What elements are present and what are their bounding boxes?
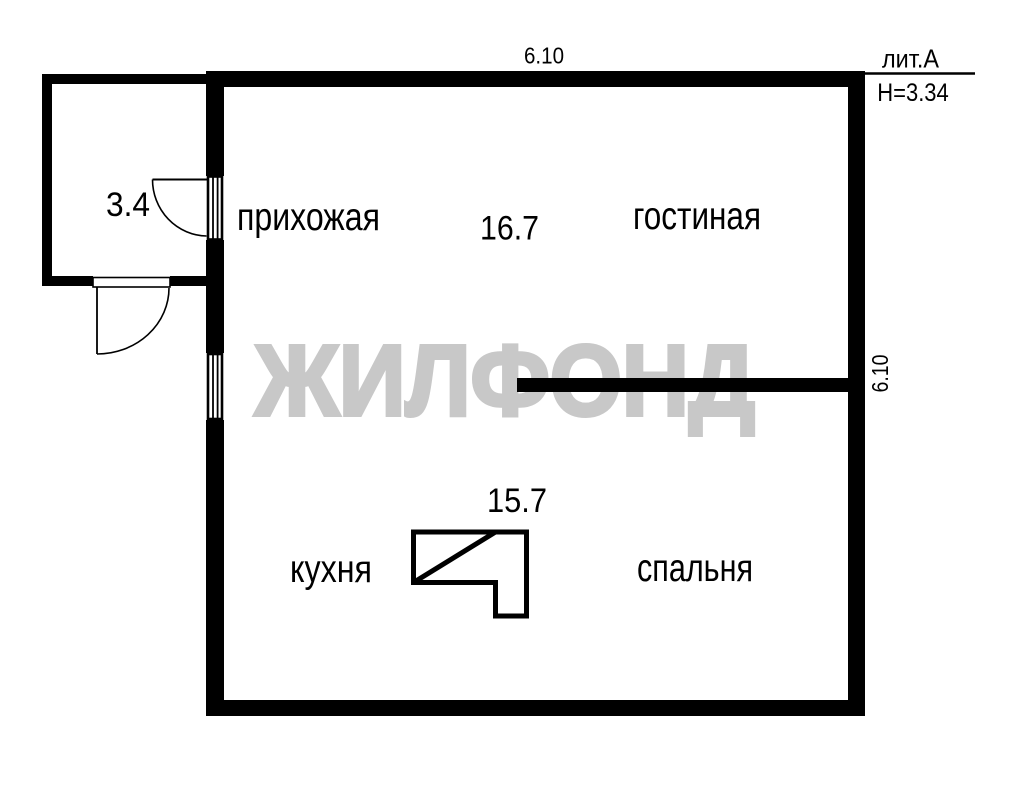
svg-text:прихожая: прихожая bbox=[237, 196, 380, 239]
svg-text:H=3.34: H=3.34 bbox=[877, 79, 949, 107]
svg-text:6.10: 6.10 bbox=[524, 43, 564, 69]
svg-text:15.7: 15.7 bbox=[487, 482, 547, 520]
svg-text:кухня: кухня bbox=[290, 548, 372, 591]
svg-text:6.10: 6.10 bbox=[867, 355, 893, 393]
svg-text:3.4: 3.4 bbox=[106, 186, 150, 224]
svg-text:гостиная: гостиная bbox=[633, 195, 761, 238]
svg-text:лит.А: лит.А bbox=[882, 44, 940, 74]
svg-text:16.7: 16.7 bbox=[480, 210, 539, 248]
svg-text:спальня: спальня bbox=[637, 547, 753, 590]
